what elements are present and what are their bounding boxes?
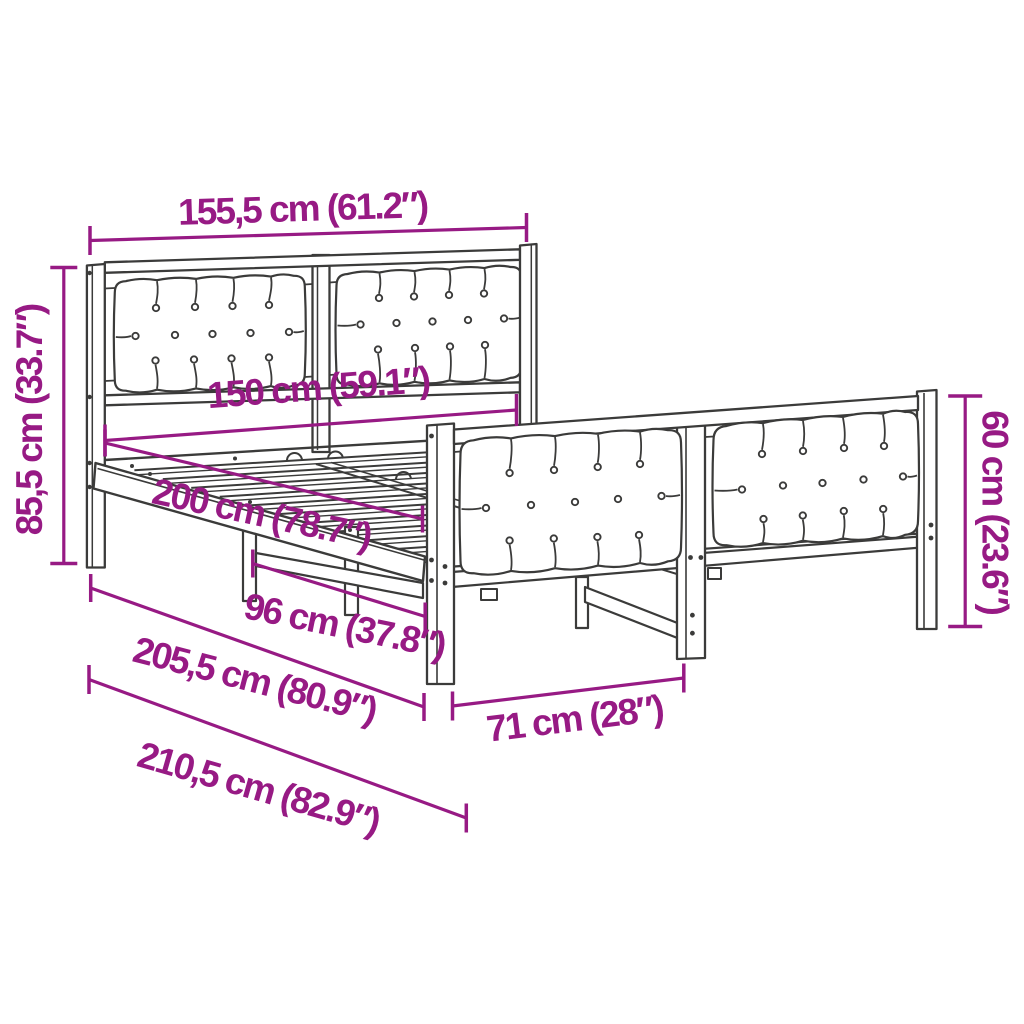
svg-text:60 cm (23.6″): 60 cm (23.6″) (975, 410, 1016, 614)
svg-text:155,5 cm (61.2″): 155,5 cm (61.2″) (178, 184, 429, 233)
svg-text:85,5 cm (33.7″): 85,5 cm (33.7″) (9, 304, 50, 535)
